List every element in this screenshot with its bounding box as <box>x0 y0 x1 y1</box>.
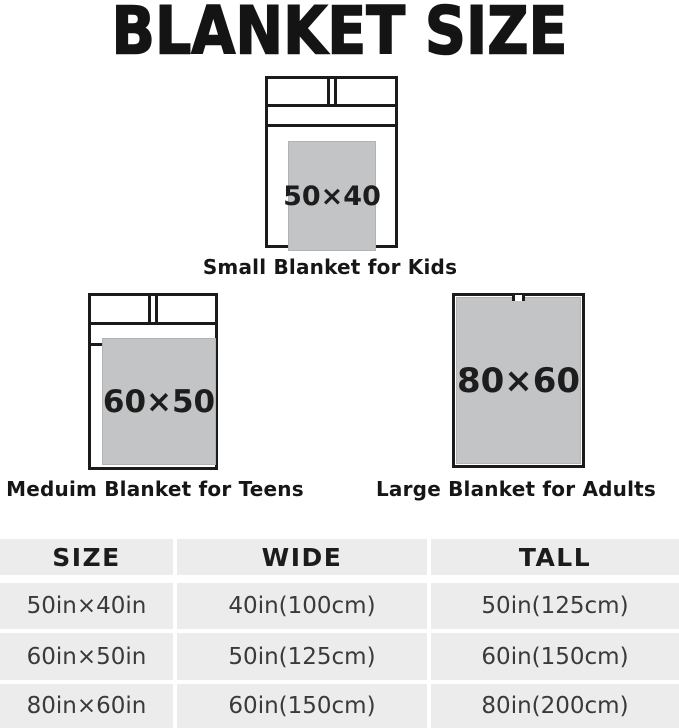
pillow-band <box>268 79 395 107</box>
blanket-medium: 60×50 <box>102 338 216 465</box>
blanket-small: 50×40 <box>288 141 376 251</box>
table-cell-row3-tall: 80in(200cm) <box>431 684 679 728</box>
blanket-large-size-label: 80×60 <box>457 361 580 401</box>
table-header-tall: TALL <box>431 539 679 575</box>
pillow-divider-icon <box>327 79 337 104</box>
caption-small-blanket: Small Blanket for Kids <box>160 255 500 279</box>
pillow-band <box>91 296 215 325</box>
pillow-divider-icon <box>148 296 158 322</box>
bed-diagram-small: 50×40 <box>265 76 398 248</box>
bed-diagram-medium: 60×50 <box>88 293 218 470</box>
blanket-medium-size-label: 60×50 <box>103 384 215 420</box>
table-cell-row2-tall: 60in(150cm) <box>431 633 679 680</box>
table-cell-row3-size: 80in×60in <box>0 684 173 728</box>
table-header-wide: WIDE <box>177 539 427 575</box>
table-header-size: SIZE <box>0 539 173 575</box>
blanket-size-infographic: BLANKET SIZE 50×40 Small Blanket for Kid… <box>0 0 679 728</box>
pillow-divider-icon <box>512 295 525 301</box>
sheet-band <box>268 107 395 127</box>
blanket-small-size-label: 50×40 <box>283 181 381 212</box>
blanket-large: 80×60 <box>456 297 581 464</box>
table-cell-row3-wide: 60in(150cm) <box>177 684 427 728</box>
caption-large-blanket: Large Blanket for Adults <box>353 477 679 501</box>
bed-diagram-large: 80×60 <box>452 293 585 468</box>
table-cell-row1-wide: 40in(100cm) <box>177 583 427 629</box>
caption-medium-blanket: Meduim Blanket for Teens <box>0 477 310 501</box>
table-cell-row2-size: 60in×50in <box>0 633 173 680</box>
table-cell-row2-wide: 50in(125cm) <box>177 633 427 680</box>
table-cell-row1-size: 50in×40in <box>0 583 173 629</box>
page-title: BLANKET SIZE <box>0 0 679 70</box>
table-cell-row1-tall: 50in(125cm) <box>431 583 679 629</box>
